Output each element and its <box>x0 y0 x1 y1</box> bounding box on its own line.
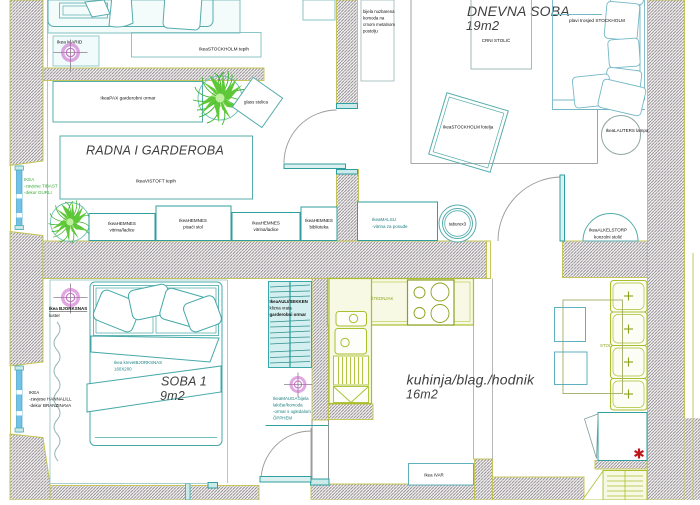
svg-text:IkeaPAX garderobni ormar: IkeaPAX garderobni ormar <box>100 96 156 101</box>
svg-text:IkeaSTOCKHOLM fotelja: IkeaSTOCKHOLM fotelja <box>443 125 494 130</box>
svg-text:IKEA: IKEA <box>29 390 39 395</box>
svg-text:SOBA 1: SOBA 1 <box>161 375 207 389</box>
svg-text:postolju: postolju <box>363 29 378 34</box>
svg-text:taburex3: taburex3 <box>449 222 467 227</box>
svg-text:-zavjese TIBAST: -zavjese TIBAST <box>24 184 58 189</box>
svg-text:plavi trosjed STOCKHOLM: plavi trosjed STOCKHOLM <box>569 18 625 23</box>
svg-text:glass stolica: glass stolica <box>244 100 268 105</box>
svg-text:IkeaAULI/SEKKEN: IkeaAULI/SEKKEN <box>270 299 308 304</box>
svg-text:RADNA I GARDEROBA: RADNA I GARDEROBA <box>86 144 224 158</box>
svg-text:IkeaHEMNES: IkeaHEMNES <box>179 218 207 223</box>
svg-text:IKEA: IKEA <box>24 177 34 182</box>
svg-text:-vitrina za posuđe: -vitrina za posuđe <box>372 224 408 229</box>
svg-text:Ikea IVAR: Ikea IVAR <box>424 473 443 478</box>
svg-text:Ikea krevetBJORKSNAS: Ikea krevetBJORKSNAS <box>114 360 162 365</box>
svg-text:STOL: STOL <box>600 343 612 348</box>
svg-text:crnom metalnom: crnom metalnom <box>363 22 395 27</box>
svg-text:ÖPPHEM: ÖPPHEM <box>273 416 292 421</box>
svg-text:biblioteka: biblioteka <box>309 225 329 230</box>
svg-text:konzolni stolić: konzolni stolić <box>594 235 623 240</box>
svg-text:16m2: 16m2 <box>406 388 438 402</box>
svg-text:IkeaSTOCKHOLM tepih: IkeaSTOCKHOLM tepih <box>199 47 249 52</box>
svg-text:pisaći stol: pisaći stol <box>183 225 203 230</box>
svg-text:IkeaMALSU: IkeaMALSU <box>372 217 396 222</box>
svg-text:-dekor GURLI: -dekor GURLI <box>24 190 52 195</box>
svg-text:vitrina/ladice: vitrina/ladice <box>109 228 135 233</box>
svg-text:IkeaHEMNES: IkeaHEMNES <box>305 218 333 223</box>
svg-text:-dekor BRANZINAVA: -dekor BRANZINAVA <box>29 403 71 408</box>
svg-text:IkeaHEMNES: IkeaHEMNES <box>252 221 280 226</box>
svg-text:ŠTEDNJAK: ŠTEDNJAK <box>371 296 394 301</box>
svg-text:IkeaALKELSTORP: IkeaALKELSTORP <box>589 228 627 233</box>
svg-text:-zavjese HANNALILL: -zavjese HANNALILL <box>29 397 72 402</box>
svg-text:IkeaLAUTERS lampa: IkeaLAUTERS lampa <box>606 128 649 133</box>
svg-text:IkeaVISTOFT tepih: IkeaVISTOFT tepih <box>136 179 176 184</box>
svg-text:IkeaMAUGA bijela: IkeaMAUGA bijela <box>273 396 309 401</box>
svg-text:9m2: 9m2 <box>160 389 185 403</box>
svg-text:bijela nuzbarena: bijela nuzbarena <box>363 9 395 14</box>
svg-text:kuhinja/blag./hodnik: kuhinja/blag./hodnik <box>407 372 536 388</box>
svg-text:Ikea BJORKSNAS: Ikea BJORKSNAS <box>49 306 87 311</box>
svg-text:IkeaHEMNES: IkeaHEMNES <box>108 221 136 226</box>
svg-text:160X200: 160X200 <box>114 367 132 372</box>
svg-text:vitrina/ladice: vitrina/ladice <box>253 227 279 232</box>
svg-text:garderobni ormar: garderobni ormar <box>270 312 307 317</box>
svg-text:-ormar s ogledalom: -ormar s ogledalom <box>273 409 311 414</box>
svg-text:CRNI STOLIĆ: CRNI STOLIĆ <box>482 37 511 43</box>
svg-text:DNEVNA SOBA: DNEVNA SOBA <box>467 3 570 19</box>
svg-text:luster: luster <box>49 313 61 318</box>
svg-text:klizna vrata: klizna vrata <box>270 306 293 311</box>
svg-text:komoda na: komoda na <box>363 16 385 21</box>
svg-text:lakičar/komoda: lakičar/komoda <box>273 403 303 408</box>
